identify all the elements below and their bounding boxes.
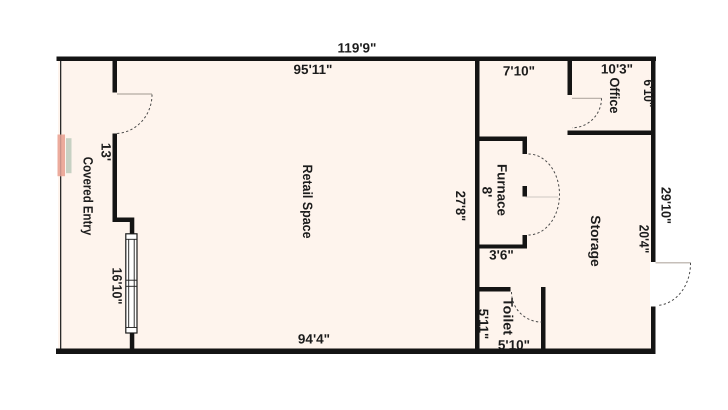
svg-text:Furnace: Furnace [494, 164, 509, 216]
svg-text:6'10": 6'10" [641, 80, 656, 108]
svg-text:95'11": 95'11" [294, 62, 333, 77]
svg-text:13': 13' [98, 143, 113, 161]
svg-text:8': 8' [479, 187, 494, 198]
svg-text:27'8": 27'8" [453, 191, 468, 222]
svg-text:5'10": 5'10" [498, 338, 530, 353]
svg-text:3'6": 3'6" [489, 248, 514, 263]
svg-text:Office: Office [607, 78, 622, 114]
svg-text:16'10": 16'10" [109, 268, 124, 305]
svg-text:Storage: Storage [588, 215, 603, 267]
svg-text:7'10": 7'10" [503, 64, 535, 79]
svg-text:94'4": 94'4" [298, 332, 330, 347]
svg-text:Retail Space: Retail Space [300, 165, 315, 239]
svg-text:Toilet: Toilet [500, 298, 515, 336]
svg-text:10'3": 10'3" [601, 62, 633, 77]
svg-text:29'10": 29'10" [658, 187, 673, 224]
svg-text:5'11": 5'11" [476, 309, 491, 340]
svg-text:20'4": 20'4" [636, 225, 651, 254]
svg-text:Covered Entry: Covered Entry [80, 157, 95, 236]
svg-text:119'9": 119'9" [338, 41, 377, 56]
